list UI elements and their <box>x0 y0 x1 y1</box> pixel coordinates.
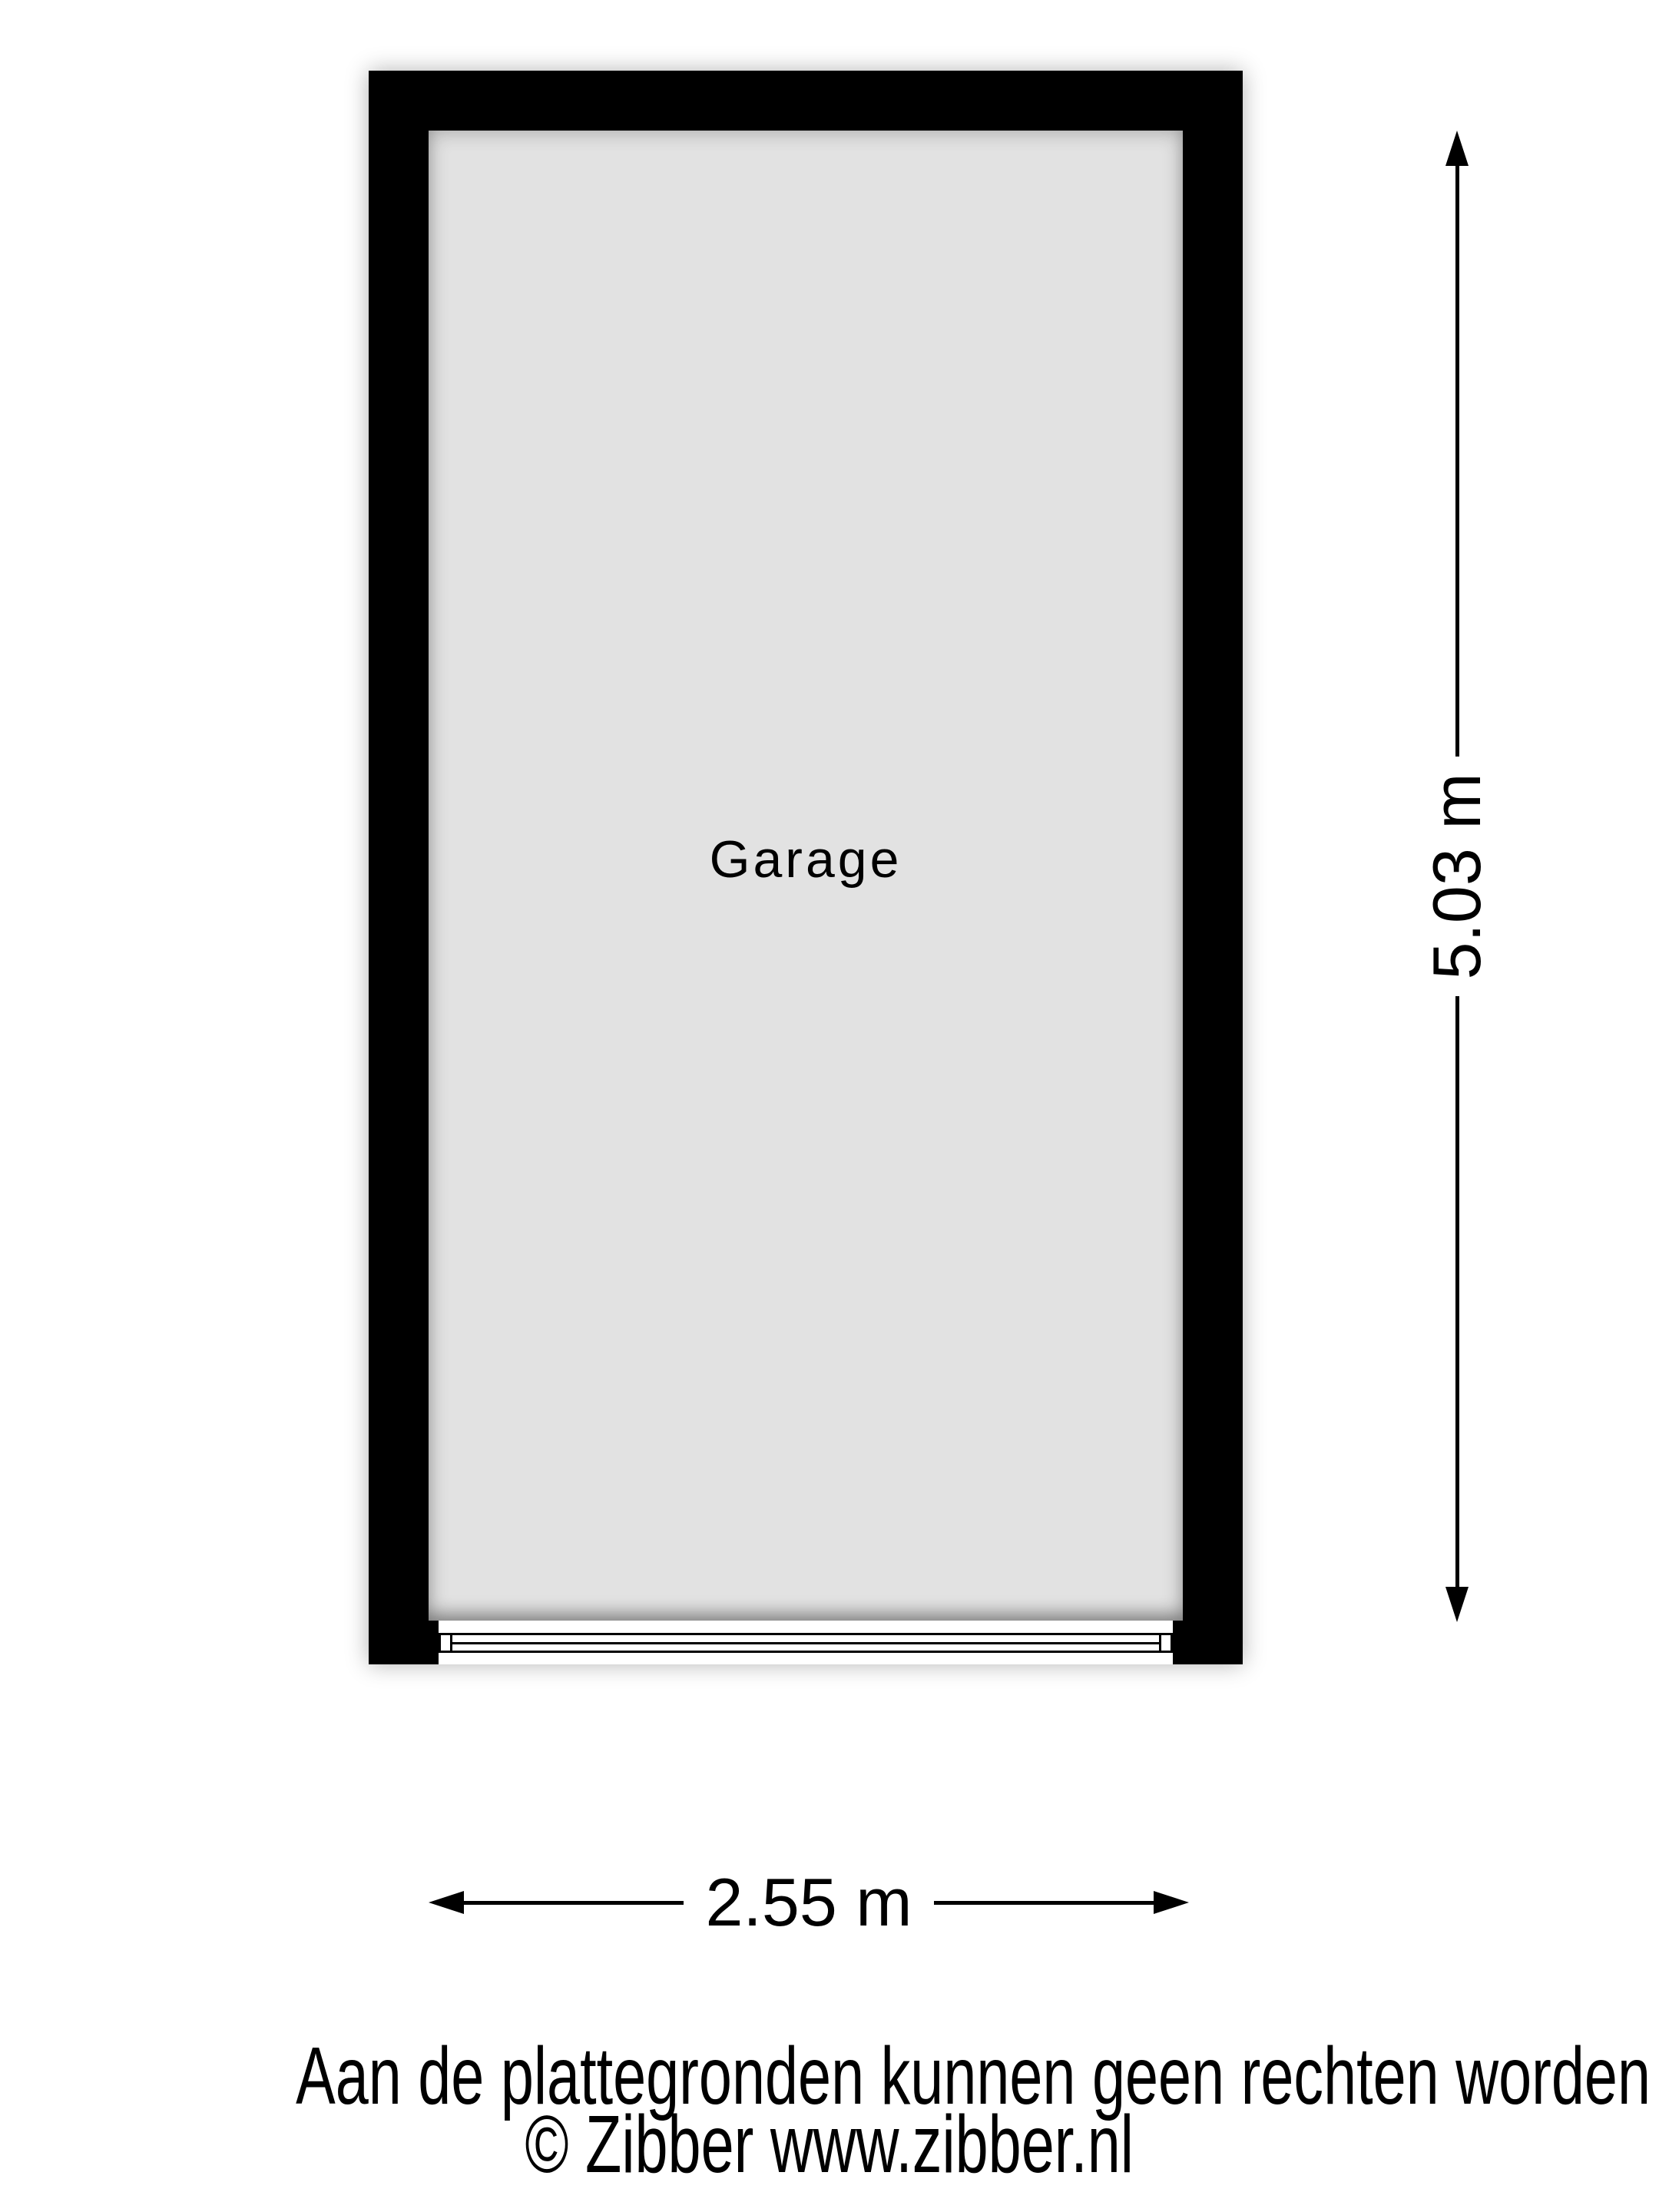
dimension-line-horizontal-left <box>464 1901 684 1905</box>
copyright-text: © Zibber www.zibber.nl <box>0 2104 1659 2185</box>
width-dimension-label: 2.55 m <box>705 1869 912 1936</box>
width-dimension: 2.55 m <box>429 1856 1189 1949</box>
arrow-down-icon <box>1445 1587 1469 1622</box>
door-jamb-left <box>429 1621 439 1664</box>
garage-door-symbol <box>439 1633 1173 1653</box>
height-dimension-label: 5.03 m <box>1423 773 1491 979</box>
door-midline <box>452 1642 1159 1644</box>
garage-door-opening <box>429 1621 1183 1664</box>
height-dimension: 5.03 m <box>1434 131 1480 1622</box>
arrow-right-icon <box>1154 1891 1189 1914</box>
arrow-left-icon <box>429 1891 464 1914</box>
dimension-line-vertical-top <box>1455 166 1459 757</box>
dimension-line-horizontal-right <box>934 1901 1154 1905</box>
door-jamb-right <box>1173 1621 1183 1664</box>
door-end-cap-right <box>1159 1635 1161 1651</box>
height-dimension-label-wrap: 5.03 m <box>1434 757 1480 996</box>
copyright-text-span: © Zibber www.zibber.nl <box>525 2104 1134 2185</box>
garage-floor: Garage <box>429 131 1183 1621</box>
room-label: Garage <box>429 833 1183 886</box>
garage-plan: Garage <box>369 71 1243 1664</box>
floorplan-canvas: Garage 5.03 m 2.55 m Aan de plattegronde… <box>0 0 1659 2212</box>
dimension-line-vertical-bottom <box>1455 996 1459 1587</box>
arrow-up-icon <box>1445 131 1469 166</box>
